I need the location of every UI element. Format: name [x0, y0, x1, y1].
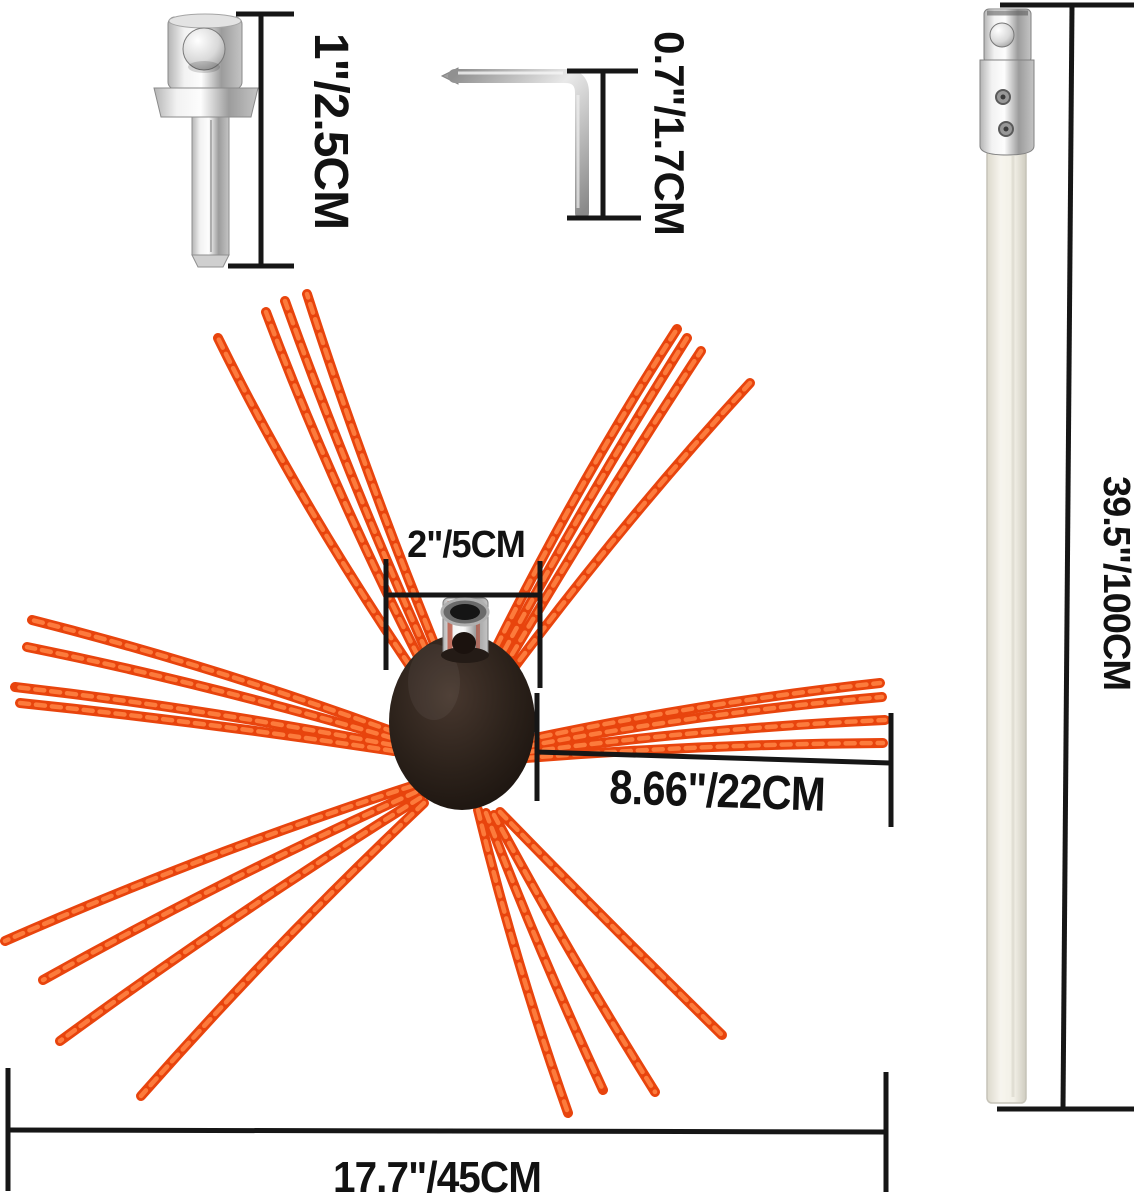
- diagram-canvas: [0, 0, 1134, 1200]
- rod-ball-detent: [990, 23, 1014, 47]
- adapter-shank-tip: [192, 255, 229, 267]
- adapter-top-face: [169, 14, 241, 28]
- bristle: [43, 792, 416, 980]
- hub-width-dimension-label: 2"/5CM: [407, 526, 525, 564]
- flexible-rod: [980, 9, 1034, 1103]
- rod-dimension-label: 39.5"/100CM: [1097, 476, 1134, 690]
- adapter-collar: [154, 88, 258, 117]
- hex-key: [442, 68, 582, 213]
- hex-key-body: [455, 76, 582, 213]
- hex-key-dimension-label: 0.7"/1.7CM: [648, 31, 690, 235]
- drill-adapter: [154, 14, 258, 267]
- bristle: [5, 786, 412, 941]
- rod-rivet-center: [1001, 95, 1006, 100]
- brush-diameter-dimension-label: 17.7"/45CM: [333, 1156, 541, 1200]
- adapter-dimension-label: 1"/2.5CM: [306, 33, 354, 229]
- rod-connector-body: [980, 60, 1034, 155]
- adapter-ball-shadow: [188, 61, 220, 73]
- product-dimension-diagram: 1"/2.5CM 0.7"/1.7CM 39.5"/100CM 2"/5CM 8…: [0, 0, 1134, 1200]
- rod-rivet-center: [1004, 127, 1009, 132]
- tube-opening: [450, 604, 480, 620]
- bristle: [266, 312, 425, 670]
- rod-shaft: [987, 150, 1026, 1103]
- bristle-length-dimension-label: 8.66"/22CM: [609, 764, 826, 819]
- tube-side-hole: [452, 632, 476, 654]
